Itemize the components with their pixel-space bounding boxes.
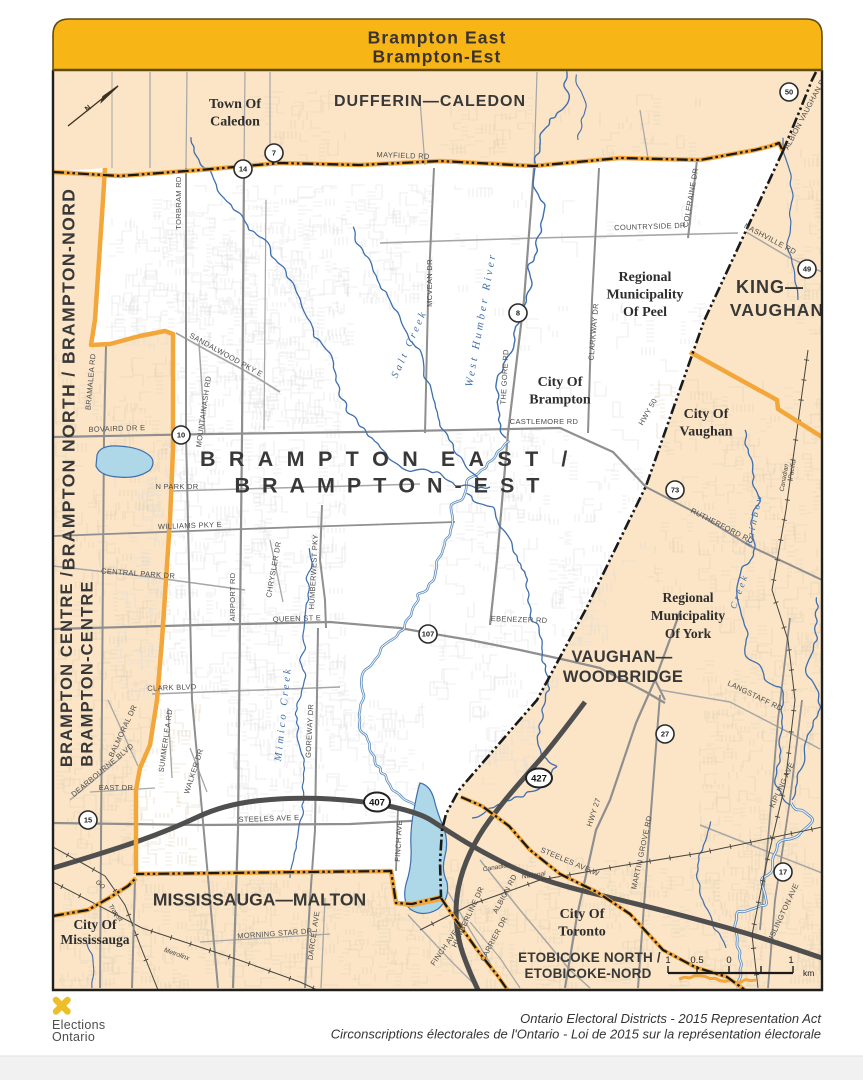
svg-text:DUFFERIN—CALEDON: DUFFERIN—CALEDON [334, 93, 526, 110]
svg-text:Regional: Regional [619, 270, 672, 285]
svg-text:1: 1 [788, 955, 793, 966]
svg-text:Of Peel: Of Peel [623, 305, 667, 320]
svg-text:73: 73 [671, 486, 679, 495]
svg-text:BRAMPTON NORTH / BRAMPTON-NORD: BRAMPTON NORTH / BRAMPTON-NORD [59, 188, 79, 571]
svg-text:27: 27 [661, 730, 669, 739]
svg-text:MCVEAN DR: MCVEAN DR [425, 259, 434, 307]
svg-text:17: 17 [779, 868, 787, 877]
svg-text:TORBRAM RD: TORBRAM RD [174, 176, 183, 230]
svg-text:Ontario: Ontario [52, 1030, 95, 1044]
svg-text:Vaughan: Vaughan [679, 425, 732, 440]
svg-text:VAUGHAN—: VAUGHAN— [571, 648, 672, 666]
svg-text:Ontario Electoral Districts -: Ontario Electoral Districts - 2015 Repre… [520, 1011, 822, 1026]
svg-text:B R A M P T O N - E S T: B R A M P T O N - E S T [235, 474, 543, 498]
svg-text:14: 14 [239, 165, 248, 174]
svg-text:1: 1 [665, 955, 670, 966]
svg-text:Mississauga: Mississauga [60, 932, 129, 947]
svg-text:BRAMPTON-CENTRE: BRAMPTON-CENTRE [79, 580, 97, 766]
svg-text:CASTLEMORE RD: CASTLEMORE RD [510, 417, 579, 426]
svg-text:City Of: City Of [538, 375, 583, 390]
svg-text:Municipality: Municipality [606, 288, 683, 303]
svg-text:Brampton: Brampton [529, 393, 591, 408]
svg-text:BRAMPTON CENTRE /: BRAMPTON CENTRE / [58, 571, 76, 767]
svg-text:Municipality: Municipality [651, 608, 726, 623]
svg-text:KING—: KING— [736, 277, 804, 297]
svg-text:VAUGHAN: VAUGHAN [730, 300, 824, 320]
svg-text:15: 15 [84, 816, 92, 825]
svg-text:Circonscriptions électorales d: Circonscriptions électorales de l'Ontari… [331, 1027, 821, 1042]
svg-text:EAST DR: EAST DR [99, 783, 134, 792]
svg-text:MISSISSAUGA—MALTON: MISSISSAUGA—MALTON [153, 890, 366, 910]
svg-text:Toronto: Toronto [558, 925, 605, 940]
svg-text:WOODBRIDGE: WOODBRIDGE [563, 668, 683, 686]
svg-text:City Of: City Of [684, 407, 729, 422]
svg-text:0: 0 [726, 955, 731, 966]
svg-text:49: 49 [803, 265, 811, 274]
svg-text:0.5: 0.5 [690, 955, 703, 966]
svg-text:107: 107 [422, 630, 435, 639]
svg-text:Town Of: Town Of [209, 97, 261, 112]
svg-text:Of York: Of York [665, 626, 712, 641]
svg-text:City Of: City Of [73, 917, 117, 932]
svg-text:Caledon: Caledon [210, 115, 260, 130]
svg-text:ETOBICOKE NORTH /: ETOBICOKE NORTH / [518, 950, 661, 965]
svg-text:City Of: City Of [560, 907, 605, 922]
svg-text:407: 407 [369, 797, 385, 808]
svg-text:Brampton-Est: Brampton-Est [373, 47, 502, 67]
svg-text:QUEEN ST E: QUEEN ST E [273, 613, 322, 624]
svg-text:km: km [803, 968, 814, 978]
svg-text:8: 8 [516, 309, 520, 318]
svg-text:Brampton East: Brampton East [368, 28, 507, 48]
svg-text:10: 10 [177, 431, 185, 440]
svg-text:427: 427 [531, 773, 547, 784]
svg-text:MAYFIELD RD: MAYFIELD RD [376, 150, 430, 161]
svg-text:ETOBICOKE-NORD: ETOBICOKE-NORD [524, 966, 651, 981]
svg-text:N PARK DR: N PARK DR [156, 482, 199, 491]
svg-text:CLARK BLVD: CLARK BLVD [147, 682, 197, 693]
svg-text:AIRPORT RD: AIRPORT RD [228, 572, 237, 621]
svg-text:Regional: Regional [662, 590, 713, 605]
svg-text:50: 50 [785, 88, 793, 97]
svg-text:B R A M P T O N E A S T /: B R A M P T O N E A S T / [200, 447, 571, 471]
svg-text:7: 7 [272, 149, 276, 158]
